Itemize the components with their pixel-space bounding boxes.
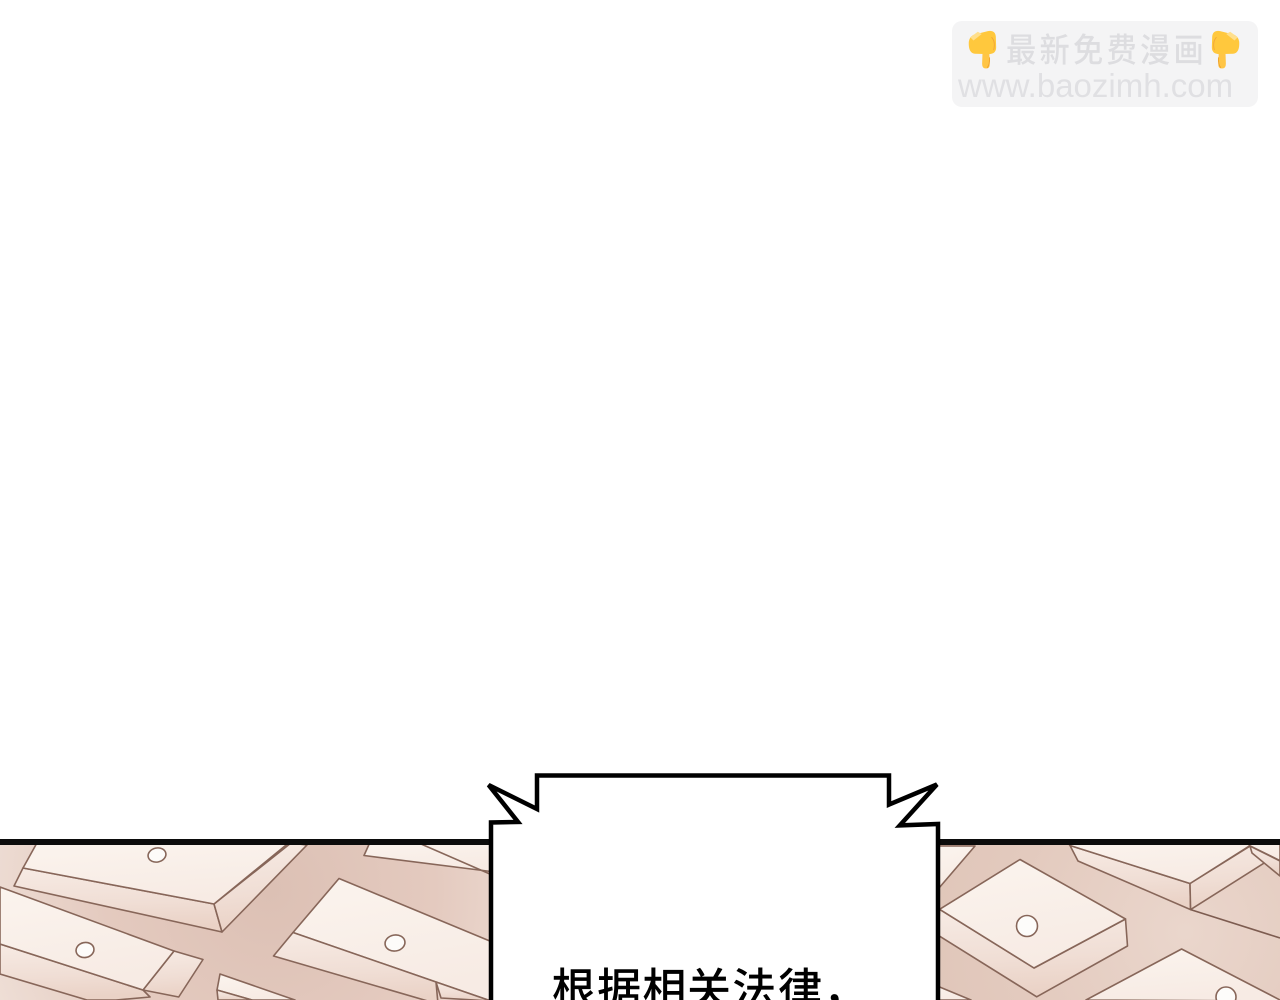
svg-text:www.baozimh.com: www.baozimh.com [957,67,1233,104]
